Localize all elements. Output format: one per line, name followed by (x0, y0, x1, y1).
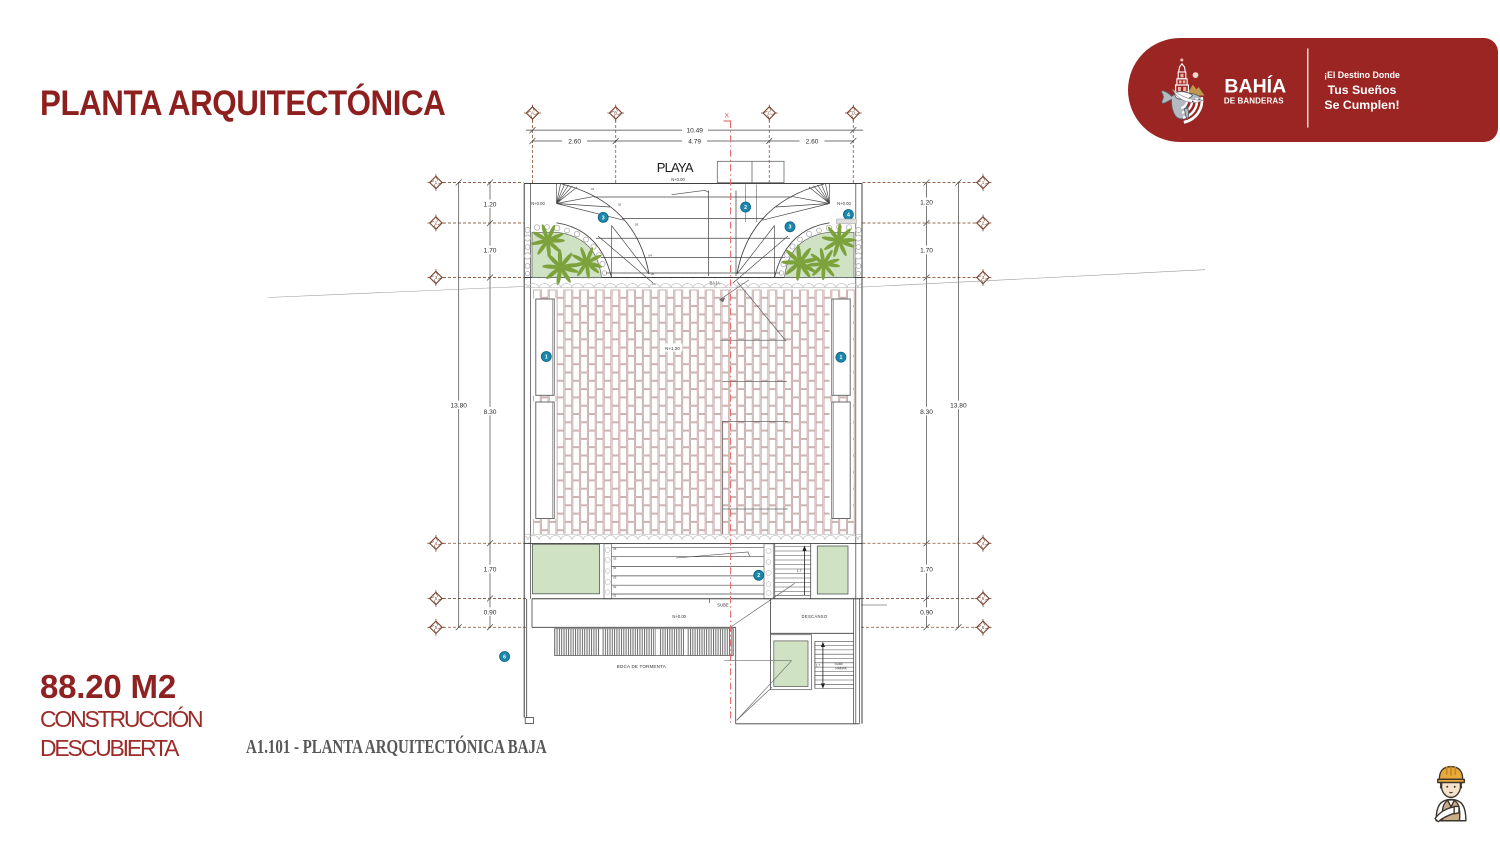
svg-text:4: 4 (847, 212, 850, 218)
svg-text:6: 6 (503, 654, 506, 660)
svg-text:02: 02 (613, 585, 617, 589)
svg-text:03: 03 (635, 222, 639, 226)
svg-text:2: 2 (435, 221, 438, 226)
svg-text:05: 05 (613, 556, 617, 560)
svg-text:SUBE: SUBE (717, 602, 729, 607)
svg-text:4: 4 (435, 541, 438, 546)
svg-text:10.49: 10.49 (686, 128, 703, 135)
svg-text:01: 01 (613, 594, 617, 598)
svg-text:1.7: 1.7 (816, 663, 821, 667)
svg-text:2.60: 2.60 (806, 138, 819, 145)
svg-text:1: 1 (982, 180, 985, 185)
svg-text:5: 5 (435, 596, 438, 601)
svg-text:1.7: 1.7 (797, 569, 802, 573)
svg-text:06: 06 (613, 547, 617, 551)
svg-text:13.80: 13.80 (450, 403, 467, 410)
svg-text:2: 2 (744, 205, 747, 211)
svg-text:PLAYA: PLAYA (657, 160, 694, 175)
svg-text:3: 3 (602, 215, 605, 221)
svg-text:01: 01 (591, 187, 595, 191)
svg-text:1: 1 (839, 355, 842, 361)
svg-text:N+0.00: N+0.00 (531, 201, 545, 206)
svg-text:N+0.00: N+0.00 (671, 177, 685, 182)
svg-text:5: 5 (982, 596, 985, 601)
svg-text:0.90: 0.90 (920, 609, 933, 616)
svg-text:4: 4 (982, 541, 985, 546)
svg-text:2.60: 2.60 (568, 138, 581, 145)
svg-text:0.90: 0.90 (484, 609, 497, 616)
svg-text:04: 04 (649, 254, 653, 258)
svg-text:3: 3 (982, 275, 985, 280)
svg-text:DESCANSO: DESCANSO (802, 614, 828, 619)
svg-text:N+1.20: N+1.20 (665, 346, 680, 351)
svg-text:1.20: 1.20 (920, 200, 933, 207)
svg-text:6: 6 (982, 625, 985, 630)
svg-text:03: 03 (613, 576, 617, 580)
svg-text:3: 3 (789, 225, 792, 231)
svg-text:1.70: 1.70 (484, 248, 497, 255)
svg-text:2: 2 (982, 221, 985, 226)
svg-text:6: 6 (435, 625, 438, 630)
svg-text:2: 2 (757, 573, 760, 579)
svg-text:02: 02 (618, 203, 622, 207)
svg-text:BOCA DE TORMENTA: BOCA DE TORMENTA (617, 664, 666, 669)
svg-text:1.20: 1.20 (484, 202, 497, 209)
svg-text:B: B (614, 111, 617, 116)
svg-text:1: 1 (545, 354, 548, 360)
svg-text:8.30: 8.30 (484, 409, 497, 416)
svg-text:1.70: 1.70 (484, 567, 497, 574)
svg-text:1.70: 1.70 (920, 567, 933, 574)
svg-text:1.70: 1.70 (920, 248, 933, 255)
svg-text:13.80: 13.80 (950, 403, 967, 410)
svg-text:3: 3 (435, 275, 438, 280)
svg-text:8.30: 8.30 (920, 409, 933, 416)
svg-text:1: 1 (435, 180, 438, 185)
svg-text:05: 05 (651, 272, 655, 276)
svg-text:N+0.00: N+0.00 (672, 614, 686, 619)
svg-text:X: X (725, 113, 730, 120)
svg-text:4.79: 4.79 (688, 138, 701, 145)
svg-text:RAMPA: RAMPA (836, 666, 848, 670)
svg-text:N+0.00: N+0.00 (837, 201, 851, 206)
svg-text:04: 04 (613, 566, 617, 570)
